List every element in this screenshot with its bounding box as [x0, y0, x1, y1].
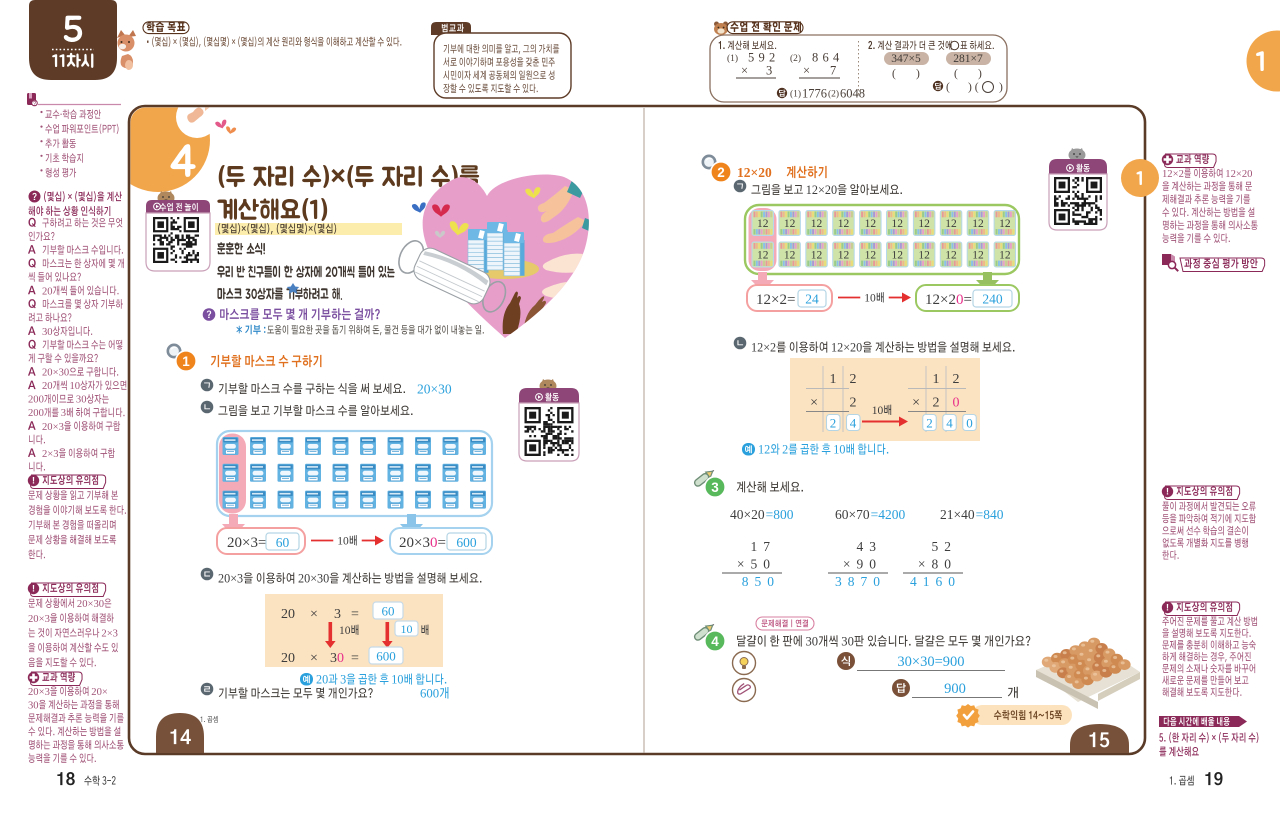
- svg-text:3: 3: [334, 607, 341, 622]
- svg-text:×90: ×90: [843, 557, 882, 572]
- svg-text:2: 2: [782, 443, 788, 457]
- svg-text:12: 12: [892, 250, 904, 262]
- svg-text:43: 43: [857, 539, 883, 554]
- svg-text:20: 20: [281, 651, 295, 666]
- svg-text:12: 12: [758, 443, 770, 457]
- svg-text:3: 3: [330, 651, 337, 666]
- svg-text:2: 2: [926, 416, 933, 431]
- svg-text:×: ×: [741, 64, 748, 78]
- svg-text:20×: 20×: [91, 687, 108, 698]
- svg-text:20×3: 20×3: [42, 422, 64, 433]
- svg-text:12: 12: [811, 250, 823, 262]
- svg-text:12: 12: [784, 218, 796, 230]
- svg-text:60: 60: [382, 604, 395, 619]
- svg-text:600: 600: [420, 687, 439, 701]
- svg-text:20×3: 20×3: [399, 535, 430, 551]
- svg-text:12: 12: [945, 250, 957, 262]
- svg-text:20×30: 20×30: [42, 368, 69, 379]
- svg-text:347×5: 347×5: [891, 53, 921, 65]
- svg-text:12×20: 12×20: [806, 183, 837, 197]
- svg-text:12×20: 12×20: [1225, 169, 1252, 180]
- svg-text:0: 0: [966, 416, 973, 431]
- svg-text:52: 52: [932, 539, 958, 554]
- svg-text:!: !: [32, 584, 35, 594]
- svg-text:10: 10: [864, 293, 876, 305]
- svg-text:30: 30: [806, 635, 819, 649]
- svg-text:2: 2: [769, 51, 775, 65]
- svg-text:2: 2: [953, 372, 960, 387]
- svg-text:12×20: 12×20: [831, 341, 862, 355]
- svg-text:4: 4: [946, 416, 953, 431]
- svg-text:30: 30: [28, 700, 39, 711]
- svg-text:30: 30: [76, 395, 87, 406]
- svg-text:2: 2: [717, 165, 725, 180]
- svg-text:12: 12: [784, 250, 796, 262]
- svg-text:(2): (2): [828, 89, 839, 100]
- svg-text:×: ×: [803, 64, 810, 78]
- svg-text:3: 3: [711, 480, 719, 495]
- svg-text:60: 60: [276, 535, 290, 550]
- svg-text:10: 10: [337, 536, 349, 548]
- svg-text:12: 12: [757, 250, 769, 262]
- svg-text:(: (: [946, 82, 950, 94]
- svg-text:20×30: 20×30: [298, 572, 329, 586]
- svg-text:200: 200: [28, 408, 44, 419]
- svg-text:=: =: [351, 651, 359, 666]
- svg-text:10: 10: [339, 625, 351, 637]
- svg-text:12: 12: [865, 250, 877, 262]
- svg-text:20×30: 20×30: [77, 599, 104, 610]
- svg-text:12: 12: [892, 218, 904, 230]
- svg-text:10: 10: [401, 622, 413, 636]
- svg-text:12: 12: [972, 218, 984, 230]
- svg-text:2: 2: [850, 396, 857, 411]
- svg-text:20×3: 20×3: [28, 614, 50, 625]
- svg-text:4160: 4160: [910, 574, 961, 589]
- svg-text:=: =: [964, 292, 972, 308]
- svg-text:10: 10: [872, 405, 884, 417]
- svg-text:20×3: 20×3: [28, 687, 50, 698]
- svg-text:!: !: [32, 476, 35, 486]
- svg-text:(1): (1): [790, 89, 801, 100]
- svg-text:9: 9: [759, 51, 765, 65]
- svg-text:0: 0: [430, 535, 438, 551]
- svg-text:(: (: [954, 68, 958, 80]
- svg-text:281×7: 281×7: [953, 53, 983, 65]
- svg-text:600: 600: [456, 535, 477, 550]
- svg-text:0: 0: [953, 396, 960, 411]
- svg-text:): ): [916, 68, 920, 80]
- svg-text:2: 2: [933, 396, 940, 411]
- svg-text:(: (: [892, 68, 896, 80]
- svg-text:240: 240: [982, 292, 1003, 307]
- svg-text:×50: ×50: [737, 557, 776, 572]
- svg-text:12: 12: [838, 250, 850, 262]
- svg-text:!: !: [1166, 487, 1169, 497]
- svg-text:0: 0: [956, 292, 964, 308]
- svg-text:4: 4: [833, 51, 840, 65]
- svg-text:6: 6: [823, 51, 829, 65]
- svg-text:12: 12: [999, 218, 1011, 230]
- svg-text:40×20: 40×20: [730, 507, 765, 522]
- svg-text:5: 5: [748, 51, 754, 65]
- svg-text:1: 1: [933, 372, 940, 387]
- svg-text:10: 10: [833, 443, 845, 457]
- svg-text:(1): (1): [727, 53, 738, 64]
- svg-text:60×70: 60×70: [835, 507, 870, 522]
- svg-text:×80: ×80: [918, 557, 957, 572]
- svg-text:900: 900: [944, 681, 966, 697]
- svg-text:1: 1: [830, 372, 837, 387]
- svg-text:6048: 6048: [840, 87, 865, 101]
- svg-text:4: 4: [850, 416, 857, 431]
- svg-text:8: 8: [812, 51, 818, 65]
- svg-text:2×3: 2×3: [101, 629, 118, 640]
- svg-text:=: =: [351, 607, 359, 622]
- svg-text:): ): [978, 68, 982, 80]
- svg-text:850: 850: [742, 574, 780, 589]
- svg-text:21×40: 21×40: [940, 507, 975, 522]
- svg-text:3: 3: [766, 64, 772, 78]
- svg-text:): ): [999, 82, 1003, 94]
- svg-text:12×2: 12×2: [751, 341, 776, 355]
- svg-text:12: 12: [838, 218, 850, 230]
- svg-text:12×2=: 12×2=: [756, 292, 795, 308]
- svg-text:12: 12: [865, 218, 877, 230]
- svg-text:12: 12: [945, 218, 957, 230]
- svg-text:×: ×: [310, 607, 318, 622]
- svg-text:30: 30: [42, 327, 53, 338]
- svg-text:10: 10: [391, 673, 403, 687]
- svg-text:24: 24: [805, 292, 819, 307]
- svg-text:2×3: 2×3: [42, 449, 59, 460]
- svg-text:1: 1: [182, 354, 190, 369]
- svg-text:(2): (2): [790, 53, 801, 64]
- svg-text:12×2: 12×2: [925, 292, 956, 308]
- svg-text:×: ×: [310, 651, 318, 666]
- svg-text:7: 7: [830, 64, 836, 78]
- svg-text:20: 20: [281, 607, 295, 622]
- svg-text:30: 30: [841, 635, 854, 649]
- svg-text:0: 0: [337, 651, 344, 666]
- svg-text:17: 17: [751, 539, 777, 554]
- svg-text:10: 10: [70, 381, 81, 392]
- svg-text:=4200: =4200: [871, 507, 906, 522]
- svg-text:20: 20: [42, 381, 53, 392]
- svg-text:4: 4: [711, 634, 719, 649]
- svg-text:3870: 3870: [835, 574, 886, 589]
- svg-text:2: 2: [830, 416, 837, 431]
- svg-text:30×30=900: 30×30=900: [897, 654, 964, 670]
- svg-text:2: 2: [850, 372, 857, 387]
- svg-text:=840: =840: [976, 507, 1004, 522]
- svg-text:12×20: 12×20: [737, 165, 772, 180]
- svg-text:20×30: 20×30: [417, 382, 452, 397]
- svg-text:20: 20: [42, 286, 53, 297]
- svg-text:3: 3: [61, 408, 66, 419]
- svg-text:200: 200: [28, 395, 44, 406]
- svg-text:=800: =800: [766, 507, 794, 522]
- svg-text:=: =: [438, 535, 446, 551]
- svg-text:12: 12: [918, 250, 930, 262]
- svg-text:20: 20: [316, 673, 328, 687]
- svg-text:20×3: 20×3: [218, 572, 243, 586]
- svg-text:12×2: 12×2: [1162, 169, 1184, 180]
- svg-text:×: ×: [810, 396, 818, 411]
- svg-text:1776: 1776: [802, 87, 827, 101]
- svg-text:!: !: [1166, 603, 1169, 613]
- svg-text:600: 600: [376, 649, 396, 664]
- svg-text:20×3=: 20×3=: [227, 535, 266, 551]
- svg-text:12: 12: [811, 218, 823, 230]
- svg-text:12: 12: [999, 250, 1011, 262]
- svg-text:×: ×: [912, 396, 920, 411]
- svg-text:) (: ) (: [968, 82, 979, 94]
- svg-text:12: 12: [757, 218, 769, 230]
- svg-text:3: 3: [340, 673, 346, 687]
- svg-text:12: 12: [918, 218, 930, 230]
- svg-text:12: 12: [972, 250, 984, 262]
